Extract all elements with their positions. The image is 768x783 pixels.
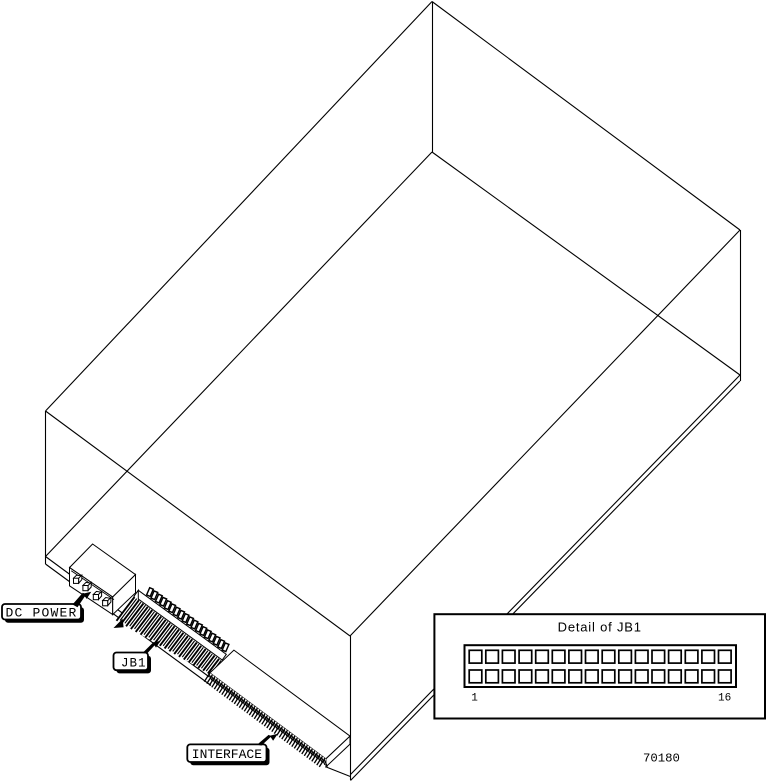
svg-text:DC POWER: DC POWER <box>6 606 78 621</box>
svg-text:1: 1 <box>471 693 478 705</box>
svg-text:Detail of JB1: Detail of JB1 <box>558 620 642 635</box>
svg-text:16: 16 <box>718 693 731 705</box>
svg-text:JB1: JB1 <box>121 657 147 671</box>
svg-text:70180: 70180 <box>643 752 680 766</box>
svg-text:INTERFACE: INTERFACE <box>192 747 262 762</box>
